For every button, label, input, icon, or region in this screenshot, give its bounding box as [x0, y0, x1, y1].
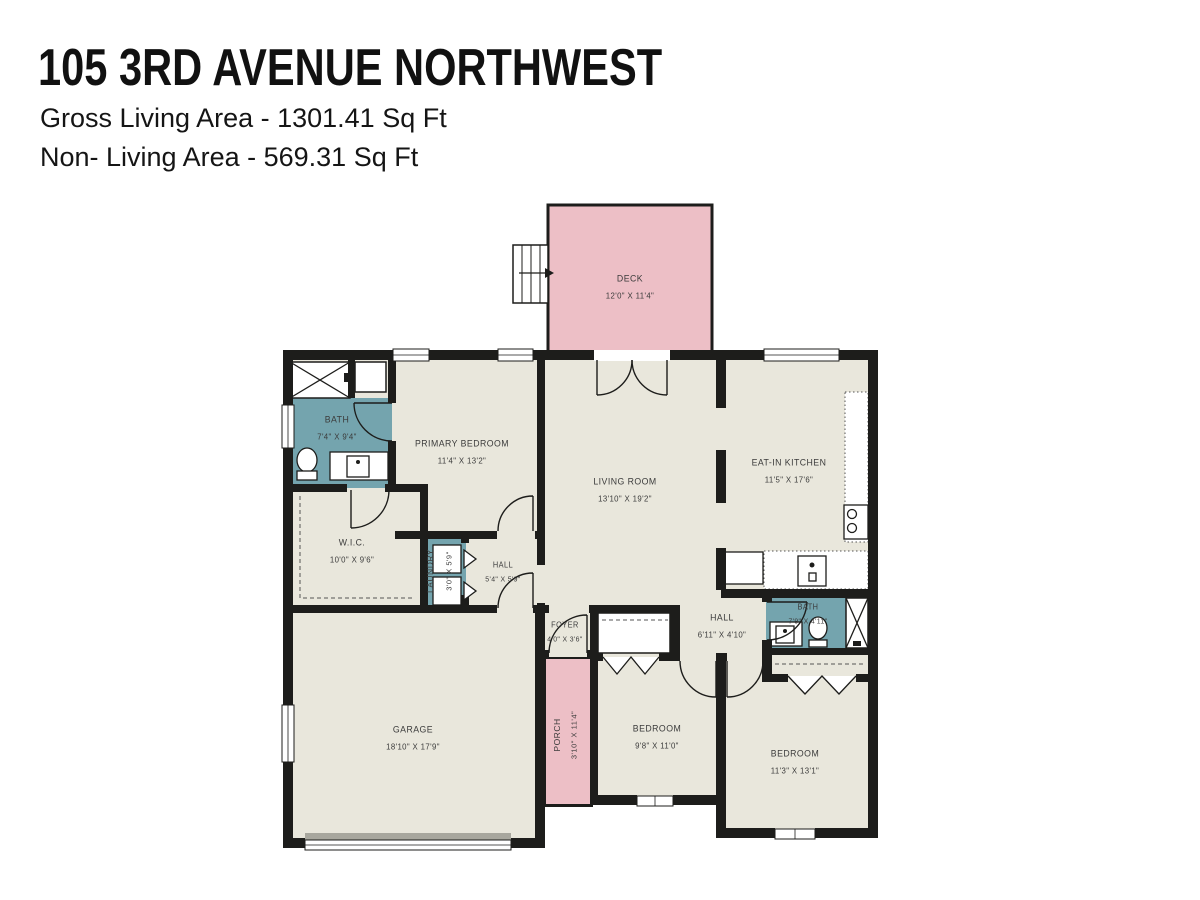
room-dims-porch: 3'10" X 11'4": [570, 711, 579, 759]
room-label-garage: GARAGE18'10" X 17'9": [384, 722, 442, 754]
linen-closet: [355, 362, 386, 392]
room-label-hall: HALL5'4" X 5'9": [484, 558, 522, 585]
room-label-foyer: FOYER4'0" X 3'6": [546, 618, 584, 645]
garage-door-header: [305, 833, 511, 840]
room-label-deck: DECK12'0" X 11'4": [604, 271, 657, 303]
room-label-living-room: LIVING ROOM13'10" X 19'2": [591, 474, 660, 506]
floor-plan: DECK12'0" X 11'4" BATH7'4" X 9'4" PRIMAR…: [0, 0, 1200, 900]
deck-door-opening: [594, 350, 670, 361]
room-label-hall-2: HALL6'11" X 4'10": [696, 610, 749, 642]
hall-closet: [598, 613, 670, 653]
room-label-eat-in-kitchen: EAT-IN KITCHEN11'5" X 17'6": [748, 455, 829, 487]
stove-icon: [844, 505, 868, 539]
room-label-bath-main: BATH7'4" X 9'4": [316, 412, 359, 444]
shower-valve-2-icon: [853, 641, 861, 646]
room-label-bedroom-2: BEDROOM11'3" X 13'1": [769, 746, 822, 778]
room-label-laundry: LAUNDRY: [425, 549, 435, 593]
room-label-primary-bedroom: PRIMARY BEDROOM11'4" X 13'2": [411, 436, 513, 468]
room-label-wic: W.I.C.10'0" X 9'6": [328, 535, 376, 567]
fridge-icon: [725, 552, 763, 584]
room-label-porch: PORCH: [552, 718, 562, 751]
room-label-bedroom-1: BEDROOM9'8" X 11'0": [631, 721, 684, 753]
toilet-main-icon: [297, 448, 317, 472]
room-label-bath-2: BATH7'9" X 4'11": [787, 600, 829, 627]
room-dims-laundry: 3'0" X 5'9": [445, 551, 454, 591]
floor-plan-drawing: [0, 0, 1200, 900]
